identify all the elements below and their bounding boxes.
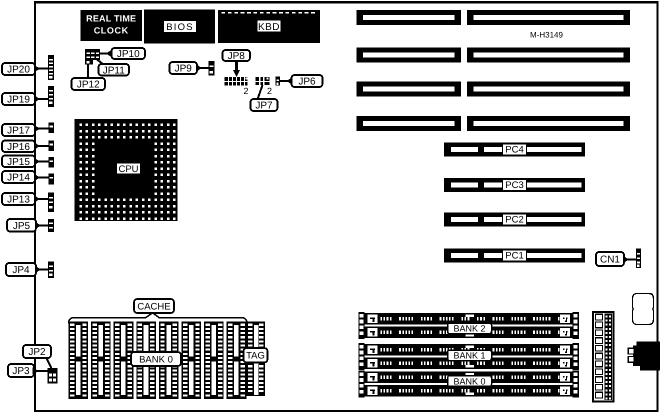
svg-text:JP3: JP3 [12, 366, 30, 377]
svg-text:2: 2 [243, 86, 248, 96]
svg-text:JP20: JP20 [7, 65, 30, 76]
svg-text:JP11: JP11 [103, 65, 125, 76]
svg-text:JP16: JP16 [7, 142, 30, 153]
svg-text:PC1: PC1 [505, 251, 523, 262]
svg-text:JP5: JP5 [13, 221, 31, 232]
svg-text:JP13: JP13 [7, 195, 30, 206]
svg-text:JP14: JP14 [7, 173, 30, 184]
svg-text:TAG: TAG [246, 351, 265, 362]
svg-text:KBD: KBD [258, 22, 280, 33]
svg-text:BANK 0: BANK 0 [453, 376, 485, 386]
svg-text:BANK 1: BANK 1 [453, 351, 485, 361]
svg-text:PC2: PC2 [505, 215, 523, 226]
svg-text:JP2: JP2 [28, 347, 46, 358]
svg-text:BANK 0: BANK 0 [139, 354, 173, 365]
svg-text:JP6: JP6 [298, 77, 316, 88]
svg-text:CLOCK: CLOCK [94, 26, 129, 36]
svg-text:BIOS: BIOS [166, 22, 194, 33]
svg-text:REAL TIME: REAL TIME [86, 14, 136, 24]
svg-text:JP7: JP7 [255, 101, 273, 112]
svg-text:JP9: JP9 [175, 64, 193, 75]
svg-text:JP8: JP8 [228, 51, 246, 62]
svg-text:JP4: JP4 [12, 265, 30, 276]
svg-text:2: 2 [267, 86, 272, 96]
svg-text:CN1: CN1 [600, 255, 620, 266]
svg-text:JP19: JP19 [7, 95, 30, 106]
svg-text:CACHE: CACHE [137, 301, 170, 312]
svg-text:M-H3149: M-H3149 [530, 31, 563, 40]
svg-text:PC4: PC4 [505, 145, 523, 156]
svg-text:CPU: CPU [118, 164, 138, 175]
svg-text:JP15: JP15 [7, 157, 30, 168]
svg-text:JP12: JP12 [77, 80, 100, 91]
svg-text:JP10: JP10 [117, 49, 140, 60]
svg-text:JP17: JP17 [7, 126, 30, 137]
svg-text:PC3: PC3 [505, 180, 523, 191]
svg-text:BANK 2: BANK 2 [453, 324, 485, 334]
